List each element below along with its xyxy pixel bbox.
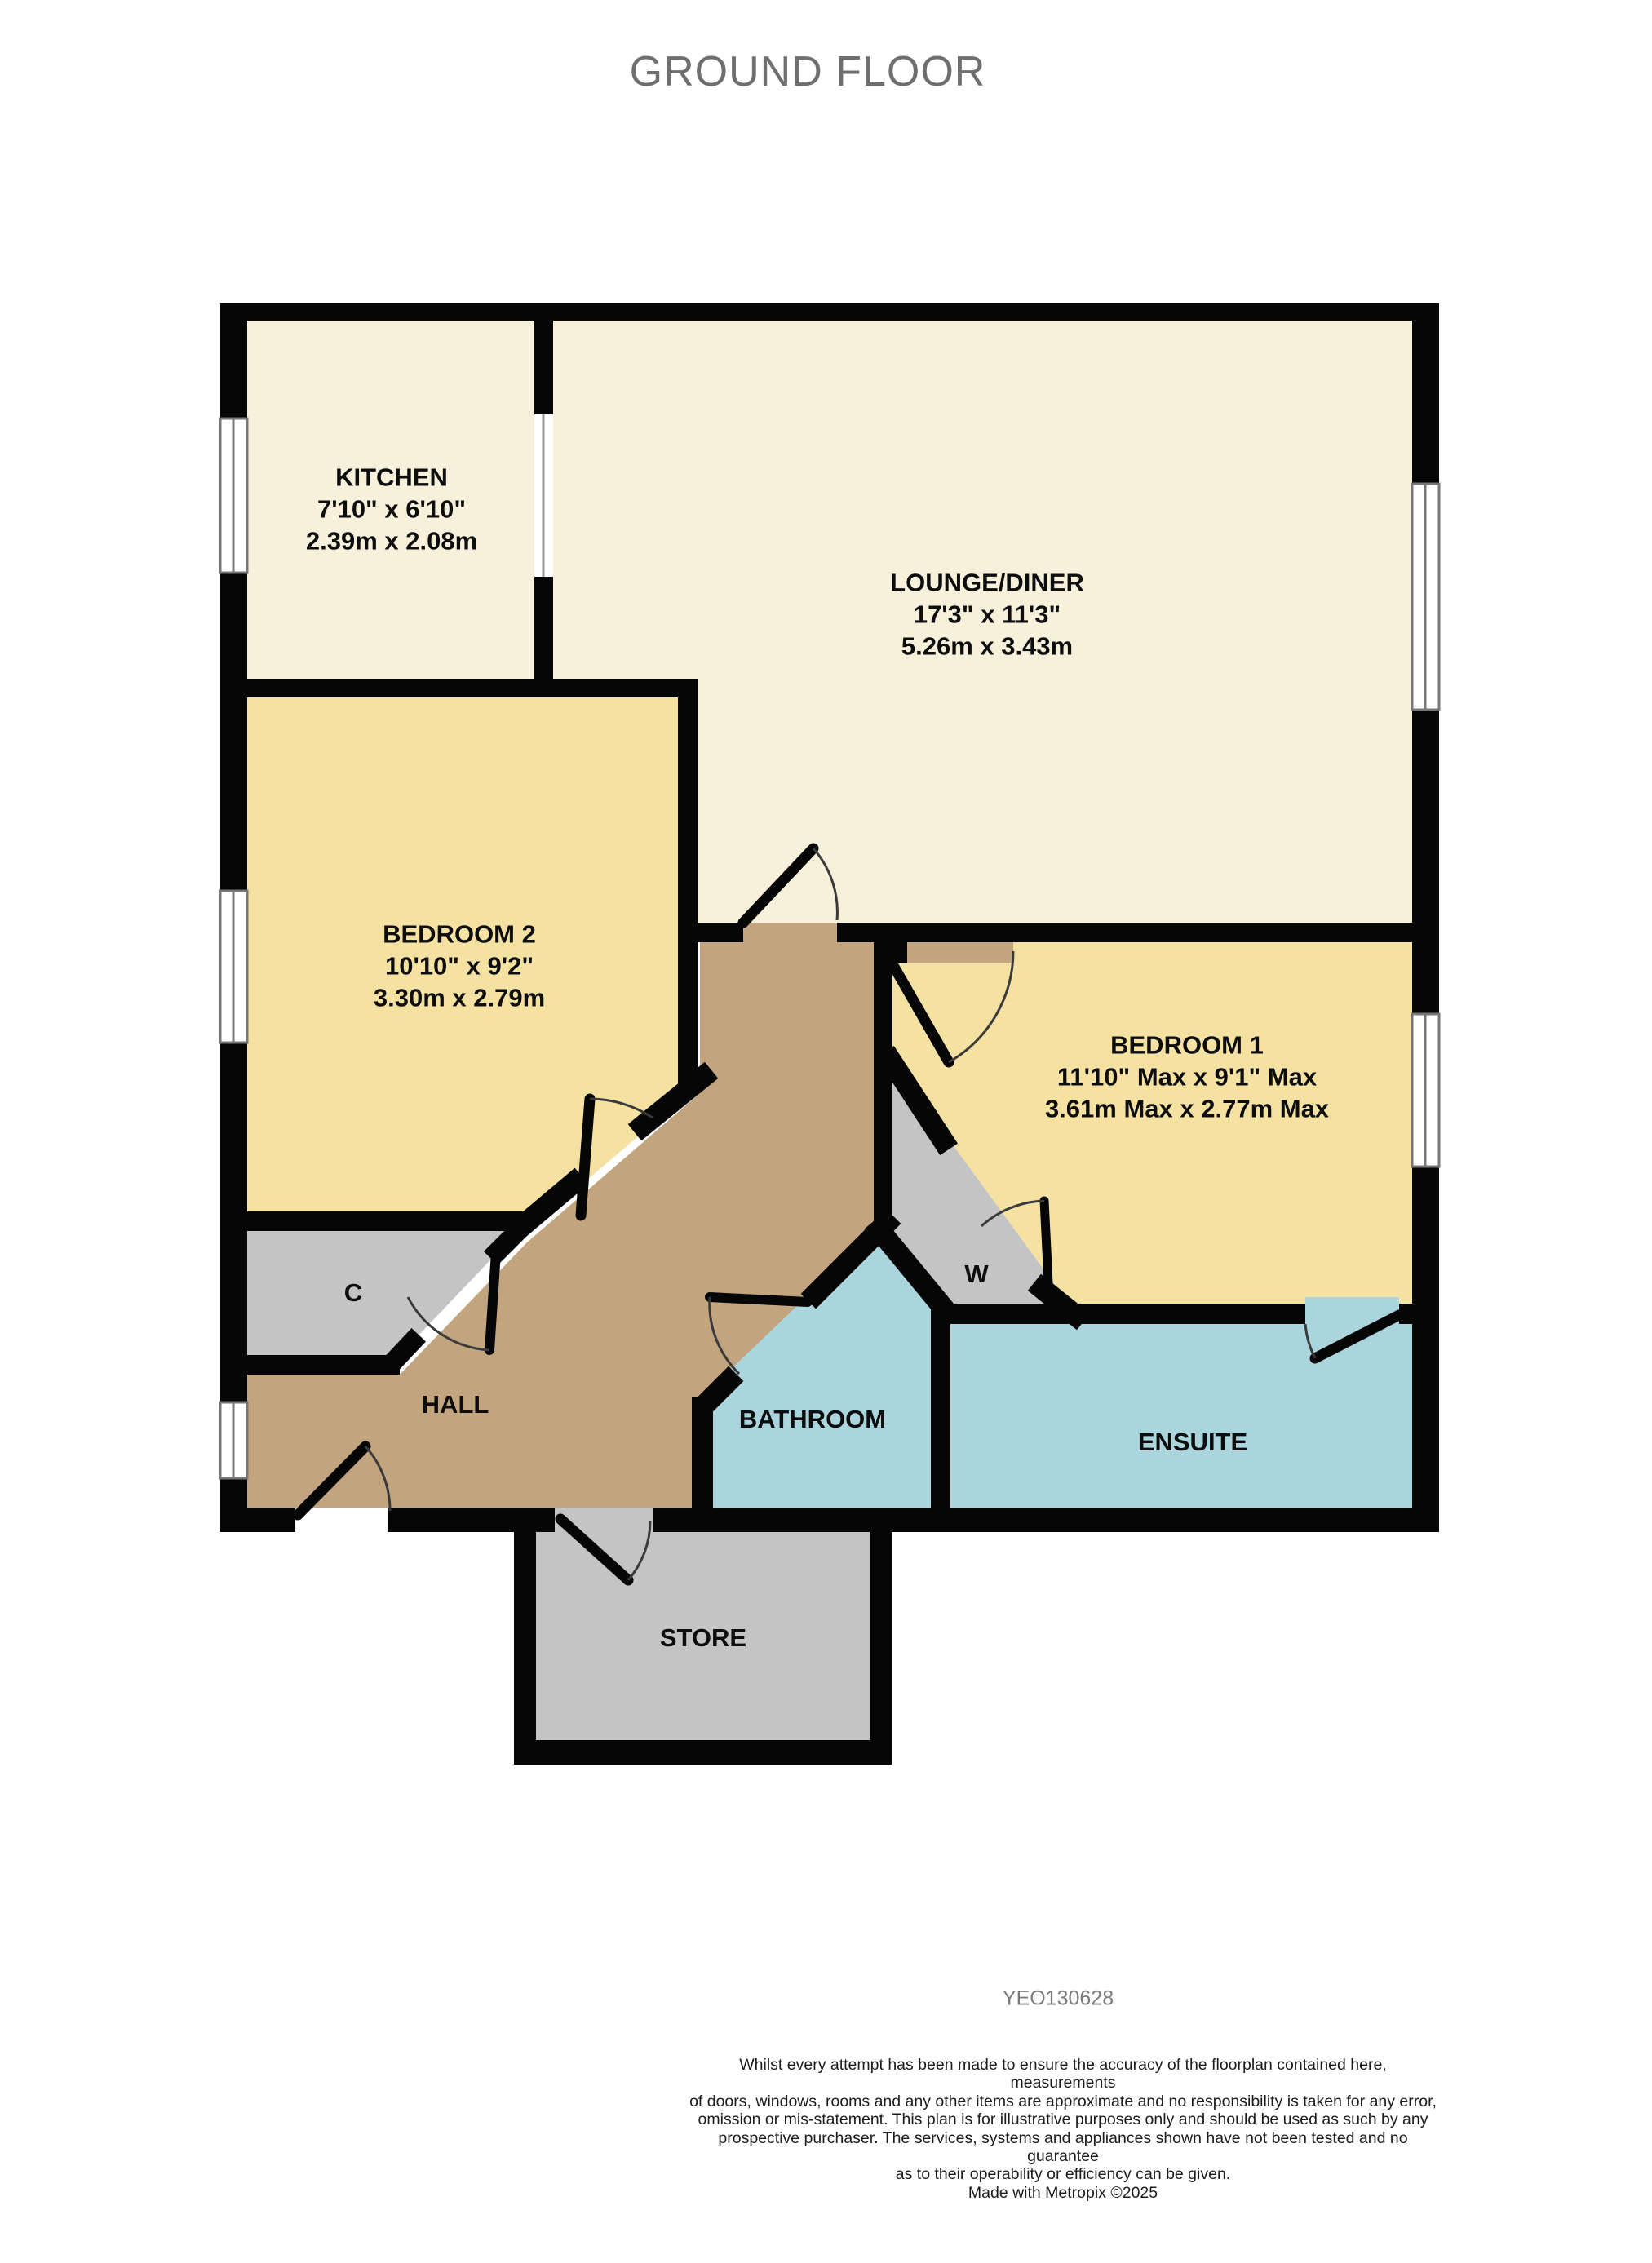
wall-top [220,303,1439,321]
page-title: GROUND FLOOR [630,47,986,96]
wall-ensuite-top [931,1304,1305,1324]
kitchen-dims-metric: 2.39m x 2.08m [306,525,477,557]
bedroom2-window [220,891,247,1043]
wardrobe-label: W [964,1260,988,1289]
disclaimer-line: prospective purchaser. The services, sys… [688,2129,1438,2166]
wall-hall-right [874,942,892,1233]
bathroom-label: BATHROOM [739,1405,886,1434]
disclaimer-line: as to their operability or efficiency ca… [688,2165,1438,2183]
ensuite-label: ENSUITE [1138,1428,1247,1457]
lounge-window [1412,484,1439,710]
bedroom2-dims-metric: 3.30m x 2.79m [374,982,545,1014]
cupboard-door-leaf [489,1252,496,1350]
kitchen-label: KITCHEN 7'10" x 6'10" 2.39m x 2.08m [306,462,477,557]
wardrobe-door-leaf [1044,1201,1049,1299]
floorplan-drawing [0,0,1652,2263]
wall-bottom-center [388,1508,555,1532]
kitchen-window [220,418,247,573]
bathroom-door-leaf [710,1297,808,1302]
disclaimer: Whilst every attempt has been made to en… [688,2056,1438,2202]
lounge-label: LOUNGE/DINER 17'3" x 11'3" 5.26m x 3.43m [890,567,1084,662]
wall-kitchen-divider-lower [534,577,553,679]
reference-code: YEO130628 [1003,1987,1114,2011]
wall-kitchen-divider-upper [534,321,553,414]
wall-bottom-west [220,1508,295,1532]
wall-lounge-bottom-east [837,923,1412,942]
wall-cupboard-bottom [220,1355,400,1375]
lounge-dims-metric: 5.26m x 3.43m [890,631,1084,662]
cupboard-label: C [344,1278,362,1308]
bedroom2-dims-imperial: 10'10" x 9'2" [374,950,545,982]
wall-kitchen-bottom [220,679,698,697]
wall-store-right [870,1532,892,1765]
wall-lounge-bottom-west [698,923,743,942]
bedroom1-label: BEDROOM 1 11'10" Max x 9'1" Max 3.61m Ma… [1045,1030,1329,1125]
disclaimer-line: of doors, windows, rooms and any other i… [688,2092,1438,2110]
wall-bedroom2-right [678,697,698,1086]
wall-bedroom2-bottom [220,1211,527,1231]
bedroom1-doorway-floor [907,942,1013,963]
bedroom1-dims-imperial: 11'10" Max x 9'1" Max [1045,1061,1329,1093]
bedroom1-window [1412,1014,1439,1167]
kitchen-name: KITCHEN [306,462,477,494]
bedroom1-name: BEDROOM 1 [1045,1030,1329,1061]
wall-bottom-east [653,1508,1439,1532]
metropix-credit: Made with Metropix ©2025 [688,2184,1438,2202]
store-label: STORE [660,1623,746,1653]
hall-window [220,1402,247,1478]
disclaimer-line: Whilst every attempt has been made to en… [688,2056,1438,2092]
bedroom2-name: BEDROOM 2 [374,919,545,950]
floorplan-page: GROUND FLOOR KITCHEN 7'10" x 6'10" 2.39m… [0,0,1652,2263]
lounge-dims-imperial: 17'3" x 11'3" [890,599,1084,631]
bedroom2-label: BEDROOM 2 10'10" x 9'2" 3.30m x 2.79m [374,919,545,1014]
wall-bathroom-ensuite-divider [931,1304,950,1508]
lounge-name: LOUNGE/DINER [890,567,1084,599]
hall-label: HALL [422,1390,489,1419]
wall-cupboard-diagonal-b [398,1342,412,1357]
wall-store-left [514,1532,536,1765]
ensuite-floor [950,1304,1412,1508]
bedroom1-dims-metric: 3.61m Max x 2.77m Max [1045,1093,1329,1125]
kitchen-dims-imperial: 7'10" x 6'10" [306,494,477,525]
wall-store-bottom [514,1740,892,1765]
disclaimer-line: omission or mis-statement. This plan is … [688,2110,1438,2128]
